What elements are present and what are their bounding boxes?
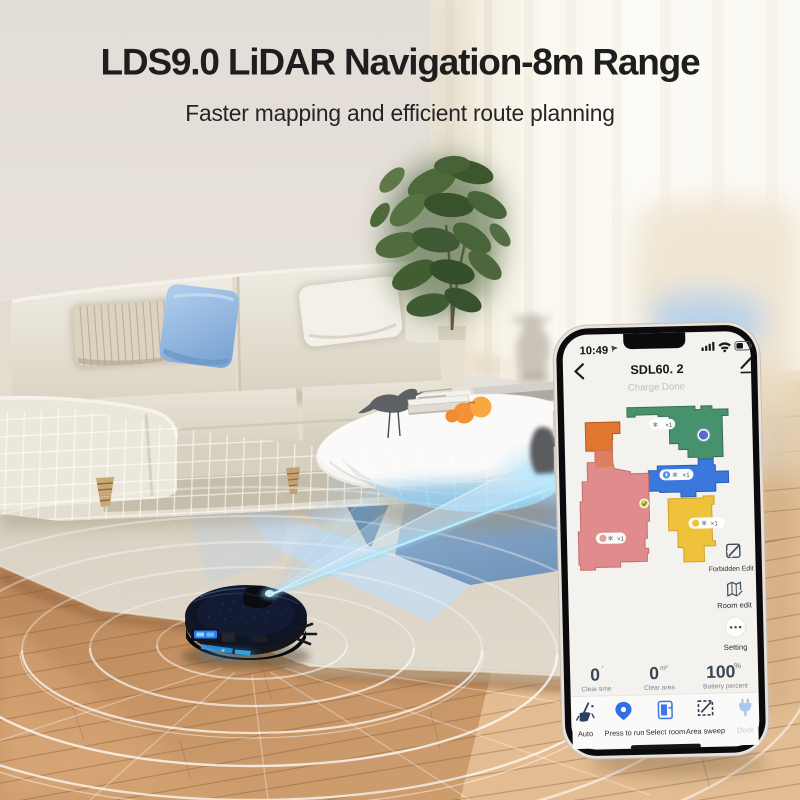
svg-text:Clear time: Clear time bbox=[581, 686, 612, 694]
svg-text:LDS9.0 LiDAR Navigation-8m Ran: LDS9.0 LiDAR Navigation-8m Range bbox=[101, 42, 701, 83]
svg-text:×1: ×1 bbox=[617, 536, 625, 543]
svg-text:Clear area: Clear area bbox=[644, 684, 675, 692]
svg-text:100: 100 bbox=[706, 661, 736, 682]
svg-text:Setting: Setting bbox=[724, 642, 748, 652]
svg-text:10:49: 10:49 bbox=[579, 345, 608, 358]
svg-text:×1: ×1 bbox=[665, 422, 673, 429]
svg-text:%: % bbox=[734, 661, 741, 670]
svg-text:0: 0 bbox=[590, 664, 600, 684]
svg-text:Forbidden Edit: Forbidden Edit bbox=[709, 565, 754, 573]
svg-text:Area sweep: Area sweep bbox=[686, 726, 725, 736]
svg-text:m²: m² bbox=[660, 665, 669, 672]
svg-text:0: 0 bbox=[649, 663, 659, 683]
svg-text:Battery percent: Battery percent bbox=[703, 682, 748, 690]
svg-text:Auto: Auto bbox=[578, 729, 593, 738]
svg-text:SDL60. 2: SDL60. 2 bbox=[630, 362, 684, 377]
svg-text:Select room: Select room bbox=[646, 727, 686, 737]
svg-text:Dock: Dock bbox=[737, 725, 754, 734]
svg-text:×1: ×1 bbox=[682, 472, 690, 479]
svg-text:Charge Done: Charge Done bbox=[628, 381, 685, 393]
svg-text:×1: ×1 bbox=[711, 520, 719, 527]
svg-text:Press to run: Press to run bbox=[605, 728, 645, 738]
svg-text:Room edit: Room edit bbox=[717, 600, 753, 610]
svg-text:Faster mapping and efficient r: Faster mapping and efficient route plann… bbox=[185, 100, 614, 126]
